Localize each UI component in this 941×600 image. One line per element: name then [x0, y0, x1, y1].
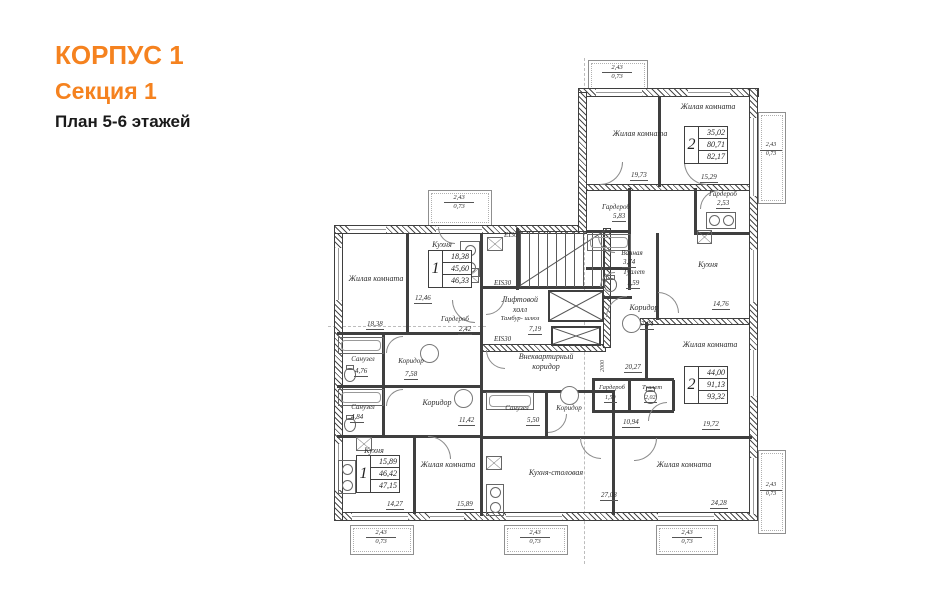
balcony-label: 2,430,73: [602, 64, 632, 81]
fire-rating-label: EIS30: [494, 279, 511, 287]
door-arc: [648, 402, 667, 421]
balcony-label: 2,430,73: [672, 529, 702, 546]
window: [749, 458, 758, 514]
building-title: КОРПУС 1: [55, 40, 184, 71]
room-area: 24,28: [710, 499, 728, 509]
room-area: 27,08: [600, 491, 618, 501]
apartment-rooms-count: 1: [429, 251, 443, 287]
balcony-label: 2,430,73: [520, 529, 550, 546]
room-area: 7,58: [404, 370, 418, 380]
door-arc: [634, 438, 657, 461]
apartment-info-table: 2 44,00 91,13 93,32: [684, 366, 728, 404]
room-area: 2,42: [458, 325, 472, 335]
stove-icon: [706, 212, 736, 229]
room-label: Коридор: [388, 357, 434, 365]
window: [749, 250, 758, 302]
room-area: 18,38: [366, 320, 384, 330]
room-area: 12,46: [414, 294, 432, 304]
apartment-area: 45,60: [443, 263, 471, 275]
room-label: Туалет: [632, 384, 672, 392]
wall: [658, 97, 661, 187]
window: [506, 512, 562, 521]
room-label: Туалет: [614, 268, 654, 276]
door-arc: [486, 350, 505, 369]
room-label: Гардероб: [700, 190, 746, 198]
apartment-info-table: 2 35,02 80,71 82,17: [684, 126, 728, 164]
balcony-label: 2,430,73: [760, 482, 782, 498]
room-area: 5,50: [526, 416, 540, 426]
room-label: Гардероб: [592, 203, 640, 211]
room-area: 4,76: [354, 367, 368, 377]
wall: [592, 378, 674, 381]
room-area: 14,27: [386, 500, 404, 510]
balcony-label: 2,430,73: [760, 142, 782, 158]
room-area: 2,53: [716, 199, 730, 209]
apartment-area: 91,13: [699, 379, 727, 391]
tambour-label: Тамбур- шлюз: [490, 315, 550, 323]
balcony: [758, 112, 786, 204]
apartment-rooms-count: 2: [685, 367, 699, 403]
room-area: 11,42: [458, 416, 475, 426]
wall: [480, 234, 483, 516]
room-label: Гардероб: [592, 384, 632, 392]
door-arc: [386, 389, 403, 406]
room-label: Коридор: [546, 404, 592, 412]
room-area: 1,59: [604, 395, 617, 403]
bathtub-icon: [338, 337, 384, 354]
door-arc: [600, 162, 623, 185]
sink-icon: [486, 456, 502, 470]
apartment-area: 46,42: [371, 468, 399, 480]
wall: [672, 380, 675, 411]
toilet-icon: [604, 278, 617, 292]
room-area: 19,73: [630, 171, 648, 181]
room-area: 20,27: [624, 363, 642, 373]
fire-rating-label: EI30: [504, 231, 518, 239]
room-area: 3,74: [622, 258, 636, 268]
room-label: Кухня: [688, 260, 728, 270]
window: [350, 225, 386, 234]
apartment-living-area: 18,38: [443, 251, 471, 263]
window: [749, 118, 758, 196]
elevator-shaft: [548, 290, 604, 322]
wall: [645, 322, 648, 380]
wall: [612, 436, 752, 439]
door-arc: [548, 414, 567, 433]
window: [334, 248, 343, 300]
room-label: Жилая комната: [652, 460, 716, 470]
common-corridor-label: Внеквартирный коридор: [508, 352, 584, 371]
room-label: Жилая комната: [608, 129, 672, 139]
vent-shaft-icon: [487, 237, 503, 251]
room-label: Санузел: [494, 404, 540, 412]
room-area: 10,94: [622, 418, 640, 428]
floor-plan-page: КОРПУС 1 Секция 1 План 5-6 этажей: [0, 0, 941, 600]
room-label: Санузел: [340, 355, 386, 363]
room-area: 14,76: [712, 300, 730, 310]
room-area: 2,02: [644, 395, 657, 403]
wall: [413, 438, 416, 514]
apartment-total-area: 82,17: [699, 151, 727, 163]
window: [658, 512, 714, 521]
apartment-total-area: 93,32: [699, 391, 727, 403]
window: [688, 88, 730, 97]
fire-rating-label: EIS30: [494, 335, 511, 343]
room-area: 15,89: [456, 500, 474, 510]
apartment-living-area: 44,00: [699, 367, 727, 379]
door-arc: [428, 436, 451, 459]
room-area: 19,72: [702, 420, 720, 430]
window: [749, 350, 758, 396]
elevator-shaft: [551, 326, 601, 346]
balcony-label: 2,430,73: [366, 529, 396, 546]
plan-title: План 5-6 этажей: [55, 112, 190, 132]
apartment-info-table: 1 18,38 45,60 46,33: [428, 250, 472, 288]
balcony-label: 2,430,73: [444, 194, 474, 211]
apartment-rooms-count: 2: [685, 127, 699, 163]
window: [430, 512, 464, 521]
lift-hall-label: Лифтовой холл: [496, 295, 544, 314]
stove-icon: [486, 484, 504, 516]
room-area: 5,83: [612, 212, 626, 222]
room-label: Гардероб: [432, 315, 478, 323]
room-label: Жилая комната: [344, 274, 408, 284]
room-label: Кухня-столовая: [516, 468, 596, 478]
room-label: Санузел: [340, 403, 386, 411]
room-area: 7,24: [640, 320, 654, 330]
apartment-living-area: 15,89: [371, 456, 399, 468]
room-label: Коридор: [412, 398, 462, 408]
wall: [578, 92, 587, 234]
apartment-total-area: 46,33: [443, 275, 471, 287]
apartment-living-area: 35,02: [699, 127, 727, 139]
window: [352, 512, 408, 521]
apartment-rooms-count: 1: [357, 456, 371, 492]
apartment-info-table: 1 15,89 46,42 47,15: [356, 455, 400, 493]
section-title: Секция 1: [55, 78, 157, 105]
apartment-total-area: 47,15: [371, 480, 399, 492]
door-arc: [386, 336, 403, 353]
room-area: 4,84: [350, 413, 364, 423]
room-label: Коридор: [622, 303, 666, 313]
ceiling-symbol: [622, 314, 641, 333]
room-label: Жилая комната: [678, 340, 742, 350]
stove-icon: [338, 460, 356, 494]
room-label: Жилая комната: [676, 102, 740, 112]
ceiling-symbol: [560, 386, 579, 405]
dimension-label: 2000: [600, 360, 606, 372]
window: [596, 88, 642, 97]
wall: [337, 385, 483, 388]
room-area: 1,59: [626, 279, 640, 289]
wall: [694, 188, 697, 234]
room-area: 7,19: [528, 325, 542, 335]
wall: [406, 234, 409, 334]
room-label: Кухня: [424, 240, 460, 250]
sink-icon: [697, 230, 712, 244]
room-area: 15,29: [700, 173, 718, 183]
apartment-area: 80,71: [699, 139, 727, 151]
room-label: Ванная: [612, 249, 652, 257]
room-label: Жилая комната: [418, 460, 478, 470]
